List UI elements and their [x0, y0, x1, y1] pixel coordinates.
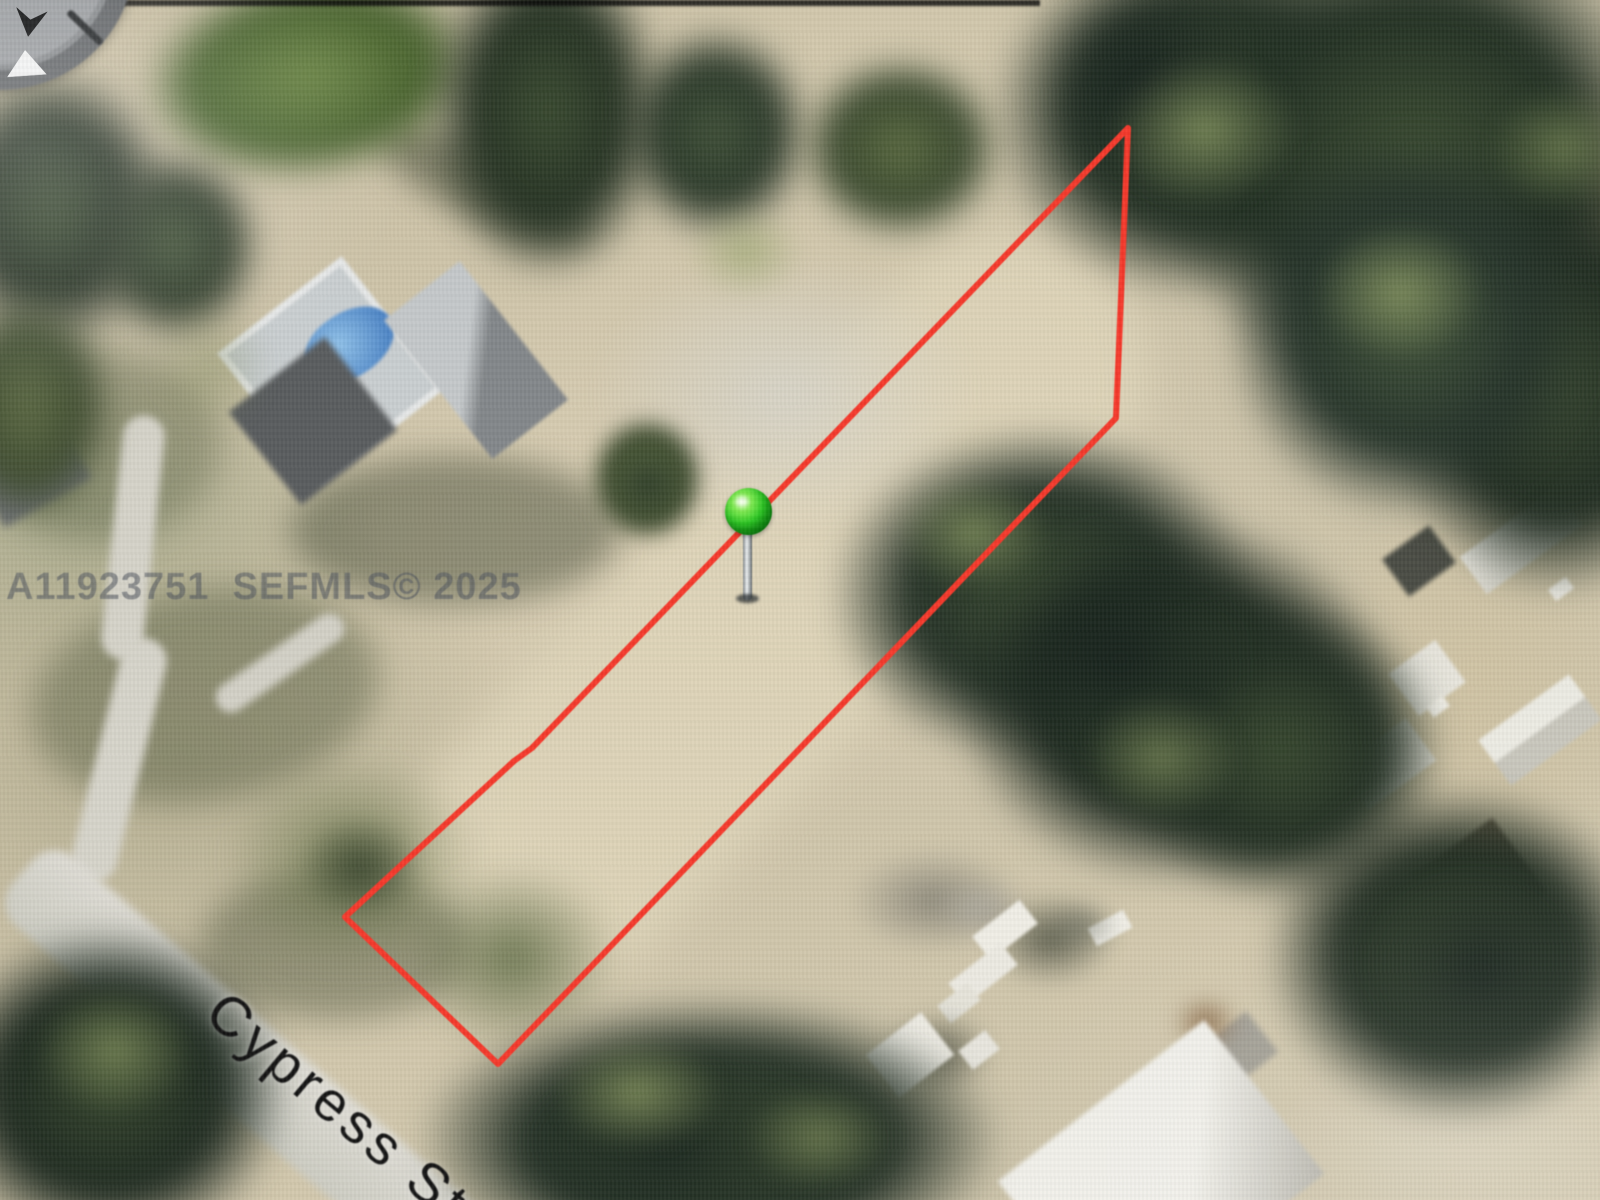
pin-highlight [736, 497, 748, 506]
mls-watermark: A11923751 SEFMLS© 2025 [6, 566, 522, 609]
map-pin[interactable] [700, 468, 810, 613]
pin-base-shadow [736, 594, 759, 603]
pin-sphere [725, 488, 772, 535]
satellite-map[interactable]: Cypress Stre A11923751 SEFMLS© 2025 [0, 0, 1600, 1200]
pan-compass-dial[interactable] [0, 0, 200, 200]
pin-stick [743, 528, 752, 600]
